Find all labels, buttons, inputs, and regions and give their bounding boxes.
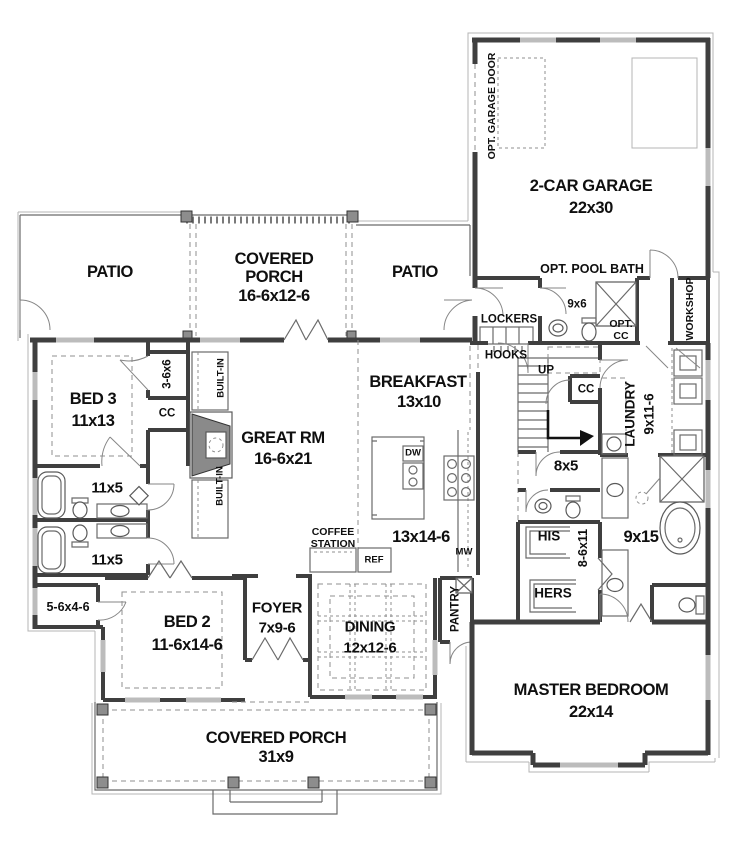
foyer-dims: 7x9-6 — [259, 621, 296, 636]
microwave-label: MW — [456, 547, 473, 557]
patio-left-label: PATIO — [87, 264, 133, 281]
porch-bottom-dims: 31x9 — [258, 749, 293, 766]
hooks-label: HOOKS — [485, 350, 527, 362]
master-bath-dims: 9x15 — [623, 529, 658, 546]
dining-label: DINING — [345, 620, 396, 635]
refrigerator-label: REF — [365, 555, 384, 565]
garage-dims: 22x30 — [569, 200, 613, 217]
porch-top-dims: 16-6x12-6 — [238, 288, 310, 305]
dining-dims: 12x12-6 — [344, 641, 397, 656]
bed2-label: BED 2 — [164, 614, 211, 631]
powder-room — [535, 496, 580, 518]
bath2-dims: 11x5 — [91, 553, 122, 568]
hall-dims: 8x5 — [554, 459, 578, 474]
rear-wall — [30, 300, 472, 340]
pantry-label: PANTRY — [450, 586, 462, 632]
bed3-label: BED 3 — [70, 391, 117, 408]
great-room-label: GREAT RM — [241, 430, 325, 447]
builtin-bottom-label: BUILT-IN — [215, 466, 225, 505]
stairs-cc-label: CC — [578, 384, 595, 396]
kitchen-dims: 13x14-6 — [392, 529, 450, 546]
coffee-station-label-2: STATION — [311, 539, 356, 550]
master-bedroom-walls — [472, 343, 708, 765]
bed3-closet-dims: 3-6x6 — [162, 359, 174, 388]
stairs — [518, 347, 600, 452]
pool-bath-label: OPT. POOL BATH — [540, 263, 644, 276]
opt-garage-door-label: OPT. GARAGE DOOR — [487, 53, 498, 160]
laundry-dims: 9x11-6 — [642, 393, 656, 434]
porch-bottom-label: COVERED PORCH — [206, 730, 347, 747]
patio-right-label: PATIO — [392, 264, 438, 281]
coffee-station-label-1: COFFEE — [312, 527, 355, 538]
his-closet-label: HIS — [538, 529, 561, 543]
workshop-label: WORKSHOP — [685, 278, 696, 341]
porch-top-label-2: PORCH — [245, 269, 303, 286]
lockers-label: LOCKERS — [481, 314, 537, 326]
bed3-cc-label: CC — [159, 408, 176, 420]
dishwasher-label: DW — [405, 448, 421, 458]
bed2-dims: 11-6x14-6 — [152, 637, 223, 654]
breakfast-dims: 13x10 — [397, 394, 441, 411]
opt-cc-label-2: CC — [613, 331, 628, 342]
hers-closet-label: HERS — [534, 586, 572, 600]
master-closet-dims: 8-6x11 — [577, 529, 590, 567]
master-bedroom-dims: 22x14 — [569, 704, 613, 721]
bed3-dims: 11x13 — [72, 413, 115, 430]
garage-label: 2-CAR GARAGE — [530, 178, 653, 195]
great-room-dims: 16-6x21 — [254, 451, 312, 468]
master-bedroom-label: MASTER BEDROOM — [514, 682, 669, 699]
laundry-label: LAUNDRY — [623, 381, 637, 447]
builtin-top-label: BUILT-IN — [216, 358, 226, 397]
opt-cc-label-1: OPT. — [609, 319, 632, 330]
stairs-up-label: UP — [538, 365, 554, 377]
dining-walls — [310, 578, 437, 697]
pool-bath-dims: 9x6 — [567, 299, 586, 311]
bath1-dims: 11x5 — [91, 481, 122, 496]
foyer-label: FOYER — [252, 601, 302, 616]
floor-plan: PATIO COVERED PORCH 16-6x12-6 PATIO OPT.… — [0, 0, 733, 850]
hall-closet-dims: 5-6x4-6 — [46, 601, 89, 614]
porch-top-label-1: COVERED — [235, 251, 314, 268]
breakfast-label: BREAKFAST — [369, 374, 466, 391]
master-closet — [518, 522, 612, 622]
